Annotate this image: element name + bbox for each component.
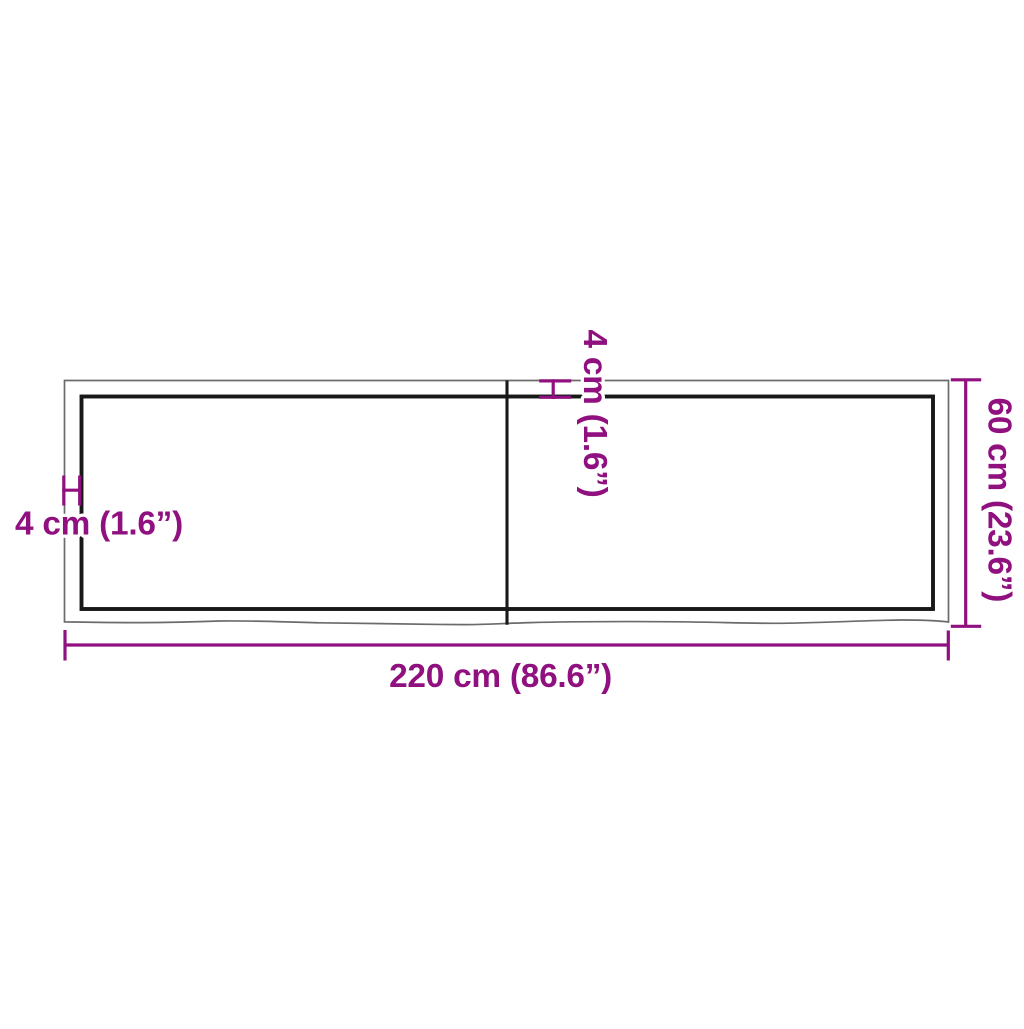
svg-text:60 cm (23.6”): 60 cm (23.6”) (981, 398, 1018, 603)
svg-text:220 cm (86.6”): 220 cm (86.6”) (389, 658, 612, 695)
svg-text:4 cm (1.6”): 4 cm (1.6”) (576, 330, 613, 498)
svg-text:4 cm (1.6”): 4 cm (1.6”) (15, 505, 183, 542)
